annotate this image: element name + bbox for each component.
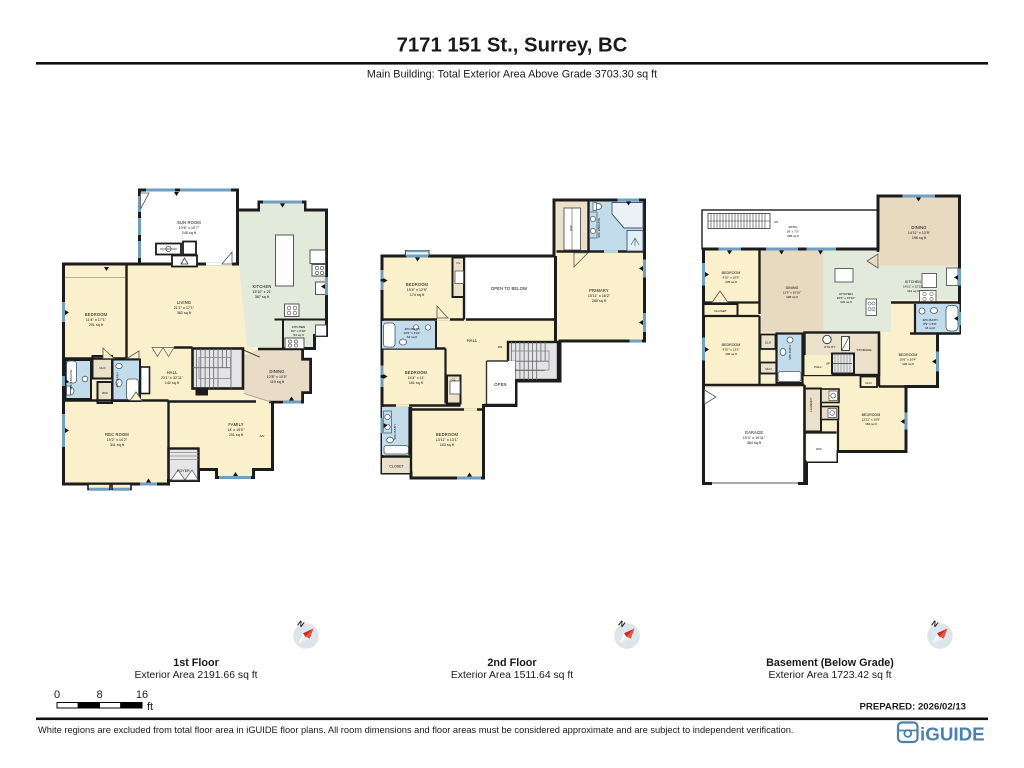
svg-text:REC ROOM: REC ROOM [105,432,129,437]
svg-text:265 sq ft: 265 sq ft [592,299,606,303]
svg-text:12'8" x 10'0": 12'8" x 10'0" [267,375,288,379]
svg-text:367 sq ft: 367 sq ft [255,295,269,299]
svg-text:BEDROOM: BEDROOM [405,370,428,375]
svg-text:2nd Floor: 2nd Floor [487,657,537,669]
svg-text:105 sq ft: 105 sq ft [725,280,737,284]
svg-text:14'11" x 13'9": 14'11" x 13'9" [908,231,931,235]
svg-text:23'1" x 32'11": 23'1" x 32'11" [161,376,184,380]
svg-text:11'4" x 17'1": 11'4" x 17'1" [86,318,107,322]
svg-text:BEDROOM: BEDROOM [722,271,741,275]
svg-text:BEDROOM: BEDROOM [436,432,459,437]
svg-text:BEDROOM: BEDROOM [862,413,881,417]
svg-text:1st Floor: 1st Floor [173,657,219,669]
svg-text:296 sq ft: 296 sq ft [787,234,799,238]
svg-text:43 sq ft: 43 sq ft [925,326,935,330]
svg-text:Exterior Area 1723.42 sq ft: Exterior Area 1723.42 sq ft [768,670,891,681]
svg-text:FOYER: FOYER [177,469,190,473]
svg-text:KITCHEN: KITCHEN [252,284,271,289]
svg-text:CLO: CLO [765,367,772,371]
svg-text:GARAGE: GARAGE [745,430,764,435]
svg-text:White regions are excluded fro: White regions are excluded from total fl… [38,725,794,735]
svg-text:245 sq ft: 245 sq ft [182,231,196,235]
svg-text:WIC: WIC [102,391,109,395]
svg-text:141 sq ft: 141 sq ft [907,289,919,293]
svg-text:PATIO: PATIO [789,225,798,229]
svg-text:163 sq ft: 163 sq ft [440,443,454,447]
svg-text:FAMILY: FAMILY [228,422,243,427]
svg-text:14'4" x 11': 14'4" x 11' [408,376,425,380]
svg-text:KITCHEN: KITCHEN [905,280,921,284]
svg-text:Exterior Area 1511.64 sq ft: Exterior Area 1511.64 sq ft [451,670,573,681]
svg-text:DINING: DINING [786,286,799,290]
svg-text:CL: CL [457,261,461,265]
svg-text:311 sq ft: 311 sq ft [110,443,124,447]
svg-text:10'6" x 10'7": 10'6" x 10'7" [179,226,200,230]
svg-text:0: 0 [54,689,60,701]
svg-text:10'6" x 10'4": 10'6" x 10'4" [900,358,917,362]
svg-text:201 sq ft: 201 sq ft [229,433,243,437]
svg-text:64 sq ft: 64 sq ft [293,333,303,337]
svg-text:162 sq ft: 162 sq ft [865,422,877,426]
svg-text:OPEN TO BELOW: OPEN TO BELOW [491,286,527,291]
svg-text:198 sq ft: 198 sq ft [786,295,798,299]
svg-text:362 sq ft: 362 sq ft [177,311,191,315]
svg-text:9'10" x 10'9": 9'10" x 10'9" [723,276,740,280]
svg-text:4PC BATH: 4PC BATH [788,345,792,360]
svg-text:STORAGE: STORAGE [856,348,871,352]
svg-text:161 sq ft: 161 sq ft [409,381,423,385]
svg-text:4PC ENSUITE: 4PC ENSUITE [597,218,601,238]
svg-text:7171 151 St., Surrey, BC: 7171 151 St., Surrey, BC [397,35,628,57]
svg-text:15'11" x 16'2": 15'11" x 16'2" [588,294,611,298]
svg-text:LIVING: LIVING [177,300,191,305]
svg-text:BEDROOM: BEDROOM [899,353,918,357]
svg-text:SUN ROOM: SUN ROOM [177,220,201,225]
svg-text:CLO: CLO [865,381,872,385]
svg-text:BEDROOM: BEDROOM [406,282,429,287]
svg-text:174 sq ft: 174 sq ft [410,293,424,297]
svg-text:CLO: CLO [765,341,772,345]
svg-text:Basement (Below Grade): Basement (Below Grade) [766,657,894,669]
svg-text:WIC: WIC [569,224,573,231]
svg-text:119 sq ft: 119 sq ft [270,380,284,384]
svg-text:UTILITY: UTILITY [824,345,836,349]
svg-text:11'9" x 16'10": 11'9" x 16'10" [783,291,801,295]
svg-text:4PC BATH: 4PC BATH [116,373,120,388]
svg-text:CL: CL [452,378,456,382]
svg-text:Exterior Area 2191.66 sq ft: Exterior Area 2191.66 sq ft [134,670,257,681]
svg-text:21'1" x 17'1": 21'1" x 17'1" [174,306,195,310]
svg-text:19'4" x 19'11": 19'4" x 19'11" [743,436,766,440]
svg-text:130 sq ft: 130 sq ft [725,352,737,356]
svg-text:ft: ft [147,701,153,713]
svg-text:BEDROOM: BEDROOM [722,343,741,347]
svg-text:iGUIDE: iGUIDE [920,724,985,745]
svg-text:Main Building: Total Exterior: Main Building: Total Exterior Area Above… [367,69,657,81]
svg-text:52 sq ft: 52 sq ft [407,335,417,339]
svg-text:201 sq ft: 201 sq ft [89,323,103,327]
svg-text:DN: DN [498,345,502,349]
svg-text:HALL: HALL [467,338,478,343]
svg-text:OPEN: OPEN [494,382,506,387]
svg-text:PREPARED: 2026/02/13: PREPARED: 2026/02/13 [860,702,966,713]
svg-text:HALL: HALL [167,370,178,375]
svg-text:BEDROOM: BEDROOM [85,312,108,317]
svg-text:CLOSET: CLOSET [389,465,404,469]
svg-text:UP: UP [774,220,778,224]
svg-text:UP: UP [826,362,830,366]
svg-text:LAUNDRY: LAUNDRY [809,397,813,412]
svg-text:CLOSET: CLOSET [714,309,726,313]
svg-text:4PC ENSUITE: 4PC ENSUITE [69,370,73,390]
svg-text:8: 8 [96,689,102,701]
svg-text:14' x 15'0": 14' x 15'0" [227,428,245,432]
svg-text:12'11" x 10'9": 12'11" x 10'9" [862,418,880,422]
svg-text:15'10" x 21': 15'10" x 21' [252,290,271,294]
svg-text:364 sq ft: 364 sq ft [747,441,761,445]
svg-text:HALL: HALL [814,365,822,369]
svg-text:196 sq ft: 196 sq ft [912,236,926,240]
svg-text:104 sq ft: 104 sq ft [840,300,852,304]
svg-text:39' x 7'2": 39' x 7'2" [787,230,799,234]
svg-text:DINING: DINING [911,225,926,230]
svg-text:106 sq ft: 106 sq ft [902,362,914,366]
svg-text:16: 16 [136,689,148,701]
svg-text:DINING: DINING [269,369,284,374]
svg-text:CLO: CLO [99,366,106,370]
svg-text:9'10" x 13'3": 9'10" x 13'3" [723,348,740,352]
svg-text:19'2" x 14'2": 19'2" x 14'2" [107,438,128,442]
svg-text:13'11" x 13'1": 13'11" x 13'1" [436,438,459,442]
svg-text:14'11" x 12'11": 14'11" x 12'11" [903,285,923,289]
svg-text:WIC: WIC [816,447,823,451]
svg-text:15'4" x 12'5": 15'4" x 12'5" [407,288,428,292]
svg-text:5PC BATH: 5PC BATH [393,425,397,440]
svg-text:142 sq ft: 142 sq ft [165,381,179,385]
svg-text:PRIMARY: PRIMARY [589,288,609,293]
